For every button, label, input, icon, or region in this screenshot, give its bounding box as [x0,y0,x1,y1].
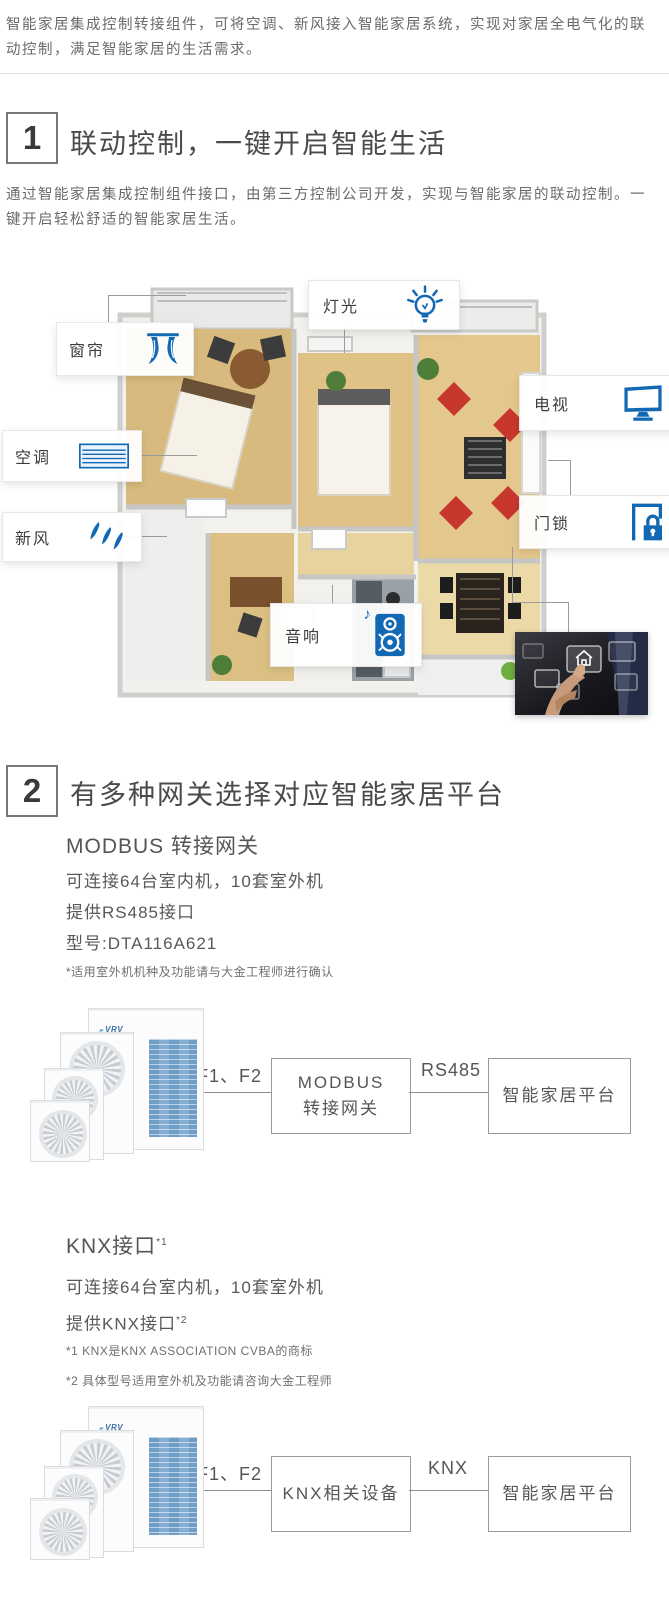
modbus-subtitle: MODBUS 转接网关 [66,830,259,860]
light-icon [405,285,445,325]
wire-f1f2-label-2: F1、F2 [197,1460,262,1486]
label-ac: 空调 [2,430,142,482]
smart-home-platform-label-2: 智能家居平台 [503,1481,617,1507]
door-lock-label: 门锁 [534,510,570,534]
modbus-gateway-line1: MODBUS [298,1070,385,1096]
smart-home-platform-label: 智能家居平台 [503,1083,617,1109]
tv-icon [622,384,664,422]
wire-f1f2-label: F1、F2 [197,1062,262,1088]
connector-tv [548,460,570,461]
knx-subtitle-sup: *1 [156,1237,167,1248]
wire-rs485 [409,1092,488,1093]
knx-subtitle-text: KNX接口 [66,1235,156,1258]
intro-paragraph: 智能家居集成控制转接组件，可将空调、新风接入智能家居系统，实现对家居全电气化的联… [6,13,656,63]
knx-diagram: VRV VRV F1、F2 KNX相关设备 KNX 智能家居平台 [0,1398,669,1563]
vrv-outdoor-units-image: VRV VRV [30,1008,202,1160]
knx-spec-1: 可连接64台室内机，10套室外机 [66,1272,324,1303]
speaker-icon [373,612,407,658]
label-door-lock: 门锁 [519,495,669,549]
smart-home-platform-node: 智能家居平台 [488,1058,631,1134]
page: 智能家居集成控制转接组件，可将空调、新风接入智能家居系统，实现对家居全电气化的联… [0,0,669,1600]
divider [0,73,669,74]
wire-f1f2 [196,1092,271,1093]
label-speaker: 音响 ♪ [270,603,422,667]
connector-photo-v1 [512,547,513,602]
label-tv: 电视 [519,375,669,431]
section1-number-badge: 1 [6,112,58,164]
connector-photo-h [512,602,568,603]
label-light: 灯光 [308,280,460,330]
ac-label: 空调 [15,444,51,468]
curtain-label: 窗帘 [69,337,105,361]
knx-device-label: KNX相关设备 [283,1481,400,1507]
connector-speaker [332,585,333,603]
wire-f1f2-2 [196,1490,271,1491]
knx-spec-2: 提供KNX接口*2 [66,1305,187,1340]
modbus-spec-3: 型号:DTA116A621 [66,928,217,959]
modbus-gateway-line2: 转接网关 [303,1096,379,1122]
speaker-label: 音响 [285,623,321,647]
knx-spec-2-text: 提供KNX接口 [66,1315,176,1334]
music-note-icon: ♪ [364,606,372,623]
section1-title: 联动控制，一键开启智能生活 [70,122,447,161]
connector-curtain [108,295,186,296]
knx-footnote-1: *1 KNX是KNX ASSOCIATION CVBA的商标 [66,1342,313,1359]
modbus-spec-1: 可连接64台室内机，10套室外机 [66,866,324,897]
ac-icon [79,443,129,469]
section1-description: 通过智能家居集成控制组件接口，由第三方控制公司开发，实现与智能家居的联动控制。一… [6,183,656,233]
vrv-outdoor-units-image-2: VRV VRV [30,1406,202,1558]
lock-icon [630,502,664,542]
modbus-gateway-node: MODBUS 转接网关 [271,1058,411,1134]
touch-screen-photo [515,632,648,715]
knx-subtitle: KNX接口*1 [66,1230,168,1260]
modbus-diagram: VRV VRV F1、F2 MODBUS 转接网关 RS485 智能家居平台 [0,1000,669,1165]
connector-lock [570,460,571,495]
connector-light [344,327,345,353]
wire-knx-label: KNX [428,1458,468,1479]
modbus-footnote: *适用室外机机种及功能请与大金工程师进行确认 [66,963,334,980]
curtain-icon [145,330,181,368]
knx-device-node: KNX相关设备 [271,1456,411,1532]
light-label: 灯光 [323,293,359,317]
smart-home-platform-node-2: 智能家居平台 [488,1456,631,1532]
label-fresh-air: 新风 [2,512,142,562]
fresh-air-icon [85,522,129,552]
fresh-air-label: 新风 [15,525,51,549]
connector-photo-v2 [568,602,569,632]
section2-title: 有多种网关选择对应智能家居平台 [70,773,505,812]
label-curtain: 窗帘 [56,322,194,376]
wire-rs485-label: RS485 [421,1060,481,1081]
section2-number-badge: 2 [6,765,58,817]
tv-label: 电视 [534,391,570,415]
wire-knx [409,1490,488,1491]
knx-spec-2-sup: *2 [176,1315,187,1326]
knx-footnote-2: *2 具体型号适用室外机及功能请咨询大金工程师 [66,1372,332,1389]
smart-home-floorplan-scene: 窗帘 灯光 电视 [0,255,669,715]
modbus-spec-2: 提供RS485接口 [66,897,195,928]
connector-curtain-v [108,295,109,323]
